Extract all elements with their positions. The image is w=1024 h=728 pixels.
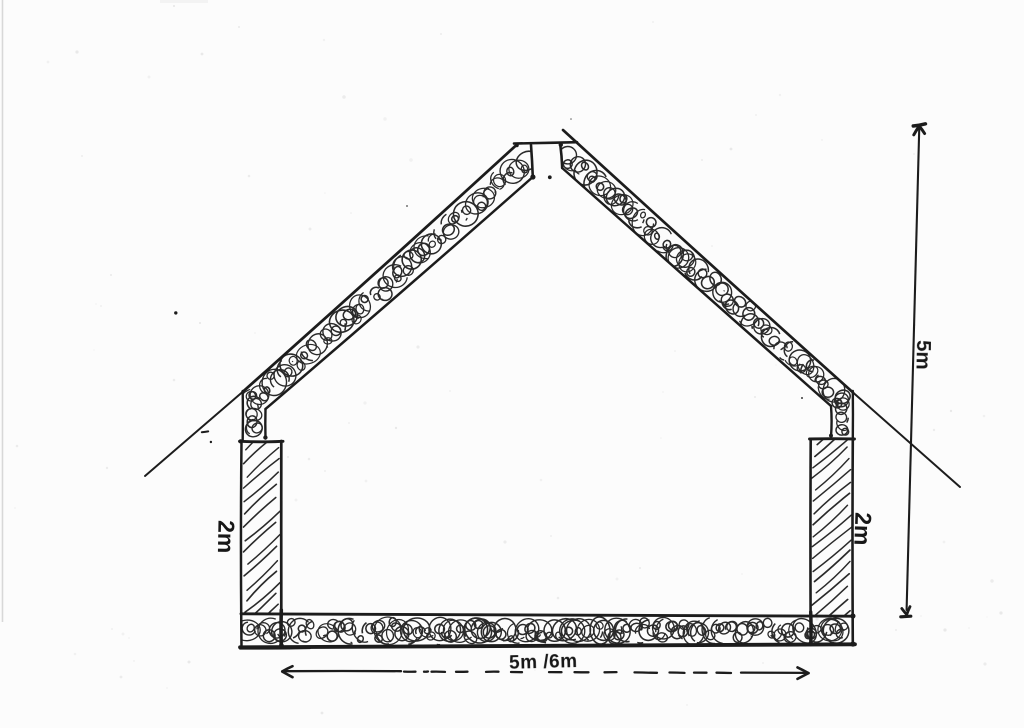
svg-text:2m: 2m xyxy=(213,520,240,554)
svg-text:5m: 5m xyxy=(911,340,935,370)
svg-text:5m /6m: 5m /6m xyxy=(509,651,578,674)
svg-text:2m: 2m xyxy=(849,512,876,546)
